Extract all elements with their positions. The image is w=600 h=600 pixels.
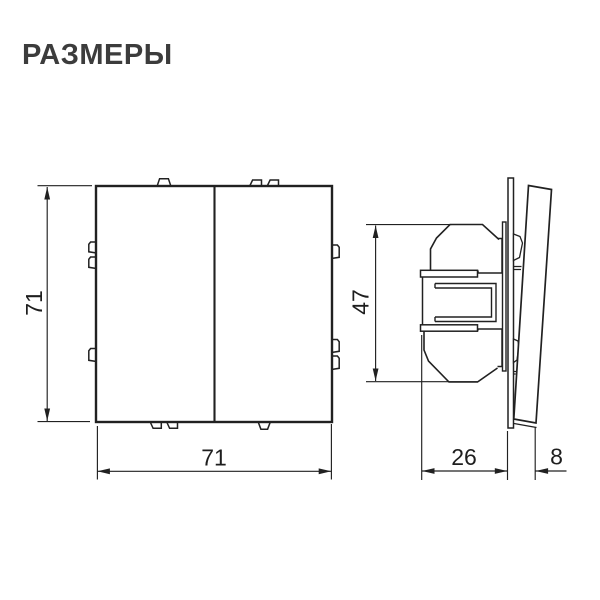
front-height-label: 71 [21,290,47,316]
side-protrusion-dimension: 8 [535,428,566,481]
dimensions-drawing-page: РАЗМЕРЫ [0,0,600,600]
front-height-dimension: 71 [21,186,92,422]
frame-plate [508,178,514,428]
clip-top [514,234,523,261]
flange-bottom [421,325,478,331]
side-depth-label: 26 [451,444,477,470]
side-protrusion-label: 8 [550,444,563,470]
yoke-fill [435,284,496,322]
claw-top-fill [431,225,500,271]
side-height-label: 47 [348,289,374,315]
rocker-key [514,186,552,424]
dimension-drawing: 71 71 47 26 8 [0,0,600,600]
metal-support-plate [503,222,507,371]
claw-bottom-fill [424,331,498,383]
flange-top [421,270,478,277]
front-view [89,179,339,430]
side-view [421,178,552,428]
front-width-label: 71 [201,445,227,471]
rocker-bottom-edge-detail [514,424,537,428]
front-width-dimension: 71 [97,424,331,480]
